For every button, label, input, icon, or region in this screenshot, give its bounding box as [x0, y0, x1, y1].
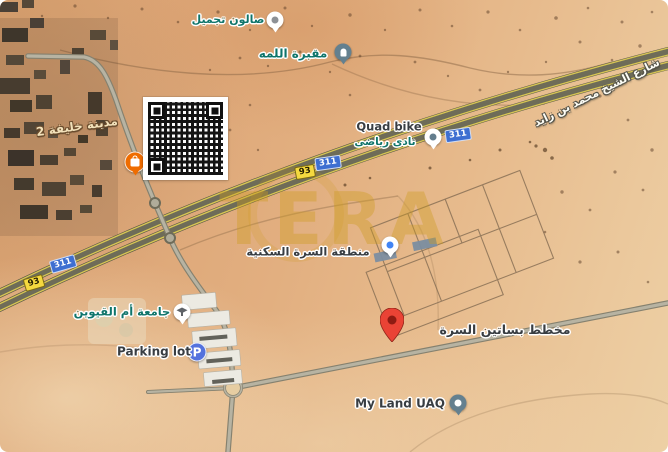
red-map-marker[interactable]: [380, 308, 404, 346]
poi-dot-icon: [455, 400, 462, 407]
qr-finder-icon: [206, 102, 223, 119]
pin-quad-bike[interactable]: [425, 129, 442, 146]
place-label-beauty-salon[interactable]: صالون تجميل: [192, 14, 265, 26]
shopping-bag-icon: [131, 158, 140, 166]
graduation-cap-icon: [177, 308, 188, 317]
qr-finder-icon: [148, 158, 165, 175]
place-label-quad-bike[interactable]: Quad bike: [356, 121, 421, 134]
pin-surra-residential[interactable]: [382, 237, 399, 254]
parking-letter: P: [193, 345, 202, 359]
cemetery-icon: [340, 48, 346, 56]
poi-dot-icon: [430, 134, 437, 141]
area-label-surra-residential[interactable]: منطقة السرة السكنية: [246, 246, 369, 259]
poi-dot-icon: [387, 242, 394, 249]
qr-code: [143, 97, 228, 180]
place-sublabel-quad-bike[interactable]: نادى رياضى: [354, 137, 415, 149]
red-pin-icon: [380, 308, 404, 342]
pin-university[interactable]: [174, 304, 191, 321]
place-label-cemetery[interactable]: مقبرة اللمه: [259, 47, 328, 60]
place-label-parking-lot[interactable]: Parking lot: [117, 345, 191, 358]
pin-cemetery[interactable]: [335, 44, 352, 61]
place-label-university[interactable]: جامعة أم القيوين: [74, 306, 171, 319]
poi-dot-icon: [272, 17, 279, 24]
pin-beauty-salon[interactable]: [267, 12, 284, 29]
qr-finder-icon: [148, 102, 165, 119]
place-label-basateen-surra[interactable]: مخطط بساتين السرة: [439, 323, 570, 337]
pin-my-land-uaq[interactable]: [450, 395, 467, 412]
place-label-my-land-uaq[interactable]: My Land UAQ: [355, 397, 445, 410]
satellite-map[interactable]: TERA شارع الشيخ محمد بن زايد 311 311 93 …: [0, 0, 668, 452]
